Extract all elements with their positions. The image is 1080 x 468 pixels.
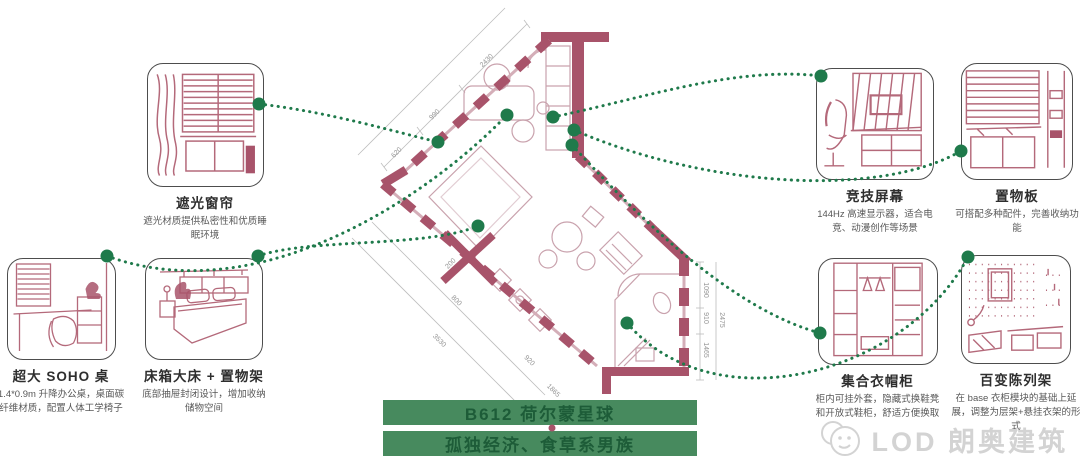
- callout-description: 可搭配多种配件，完善收纳功能: [953, 208, 1080, 236]
- soho-desk-thumbnail: [7, 258, 116, 360]
- callout-title: 置物板: [953, 185, 1080, 205]
- callout-title: 床箱大床 + 置物架: [134, 365, 274, 385]
- watermark-logo: LOD 朗奥建筑: [818, 418, 1069, 460]
- callout-title: 遮光窗帘: [115, 192, 295, 212]
- floor-plan-walls: [383, 32, 689, 394]
- banner-line2-text: 孤独经济、食草系男族: [445, 431, 635, 456]
- desk-sketch-icon: [8, 259, 115, 359]
- wardrobe-sketch-icon: [819, 259, 937, 364]
- shelf-board-thumbnail: [961, 63, 1073, 180]
- callout-description: 1.4*0.9m 升降办公桌，桌面碳纤维材质，配置人体工学椅子: [0, 388, 126, 416]
- dimension-label: 1865: [545, 383, 561, 399]
- bed-sketch-icon: [146, 259, 262, 359]
- infographic-canvas: 2430 990 620 200 800 3530 920 1865 1090 …: [0, 0, 1080, 468]
- callout-description: 底部抽屉封闭设计，增加收纳储物空间: [138, 388, 270, 416]
- dimension-label: 1090: [702, 282, 709, 298]
- dimension-label: 910: [702, 312, 709, 324]
- callout-description: 柜内可挂外套，隐藏式换鞋凳和开放式鞋柜，舒适方便换取: [812, 393, 944, 421]
- callout-title: 超大 SOHO 桌: [0, 365, 126, 385]
- callout-blackout-curtain: 遮光窗帘 遮光材质提供私密性和优质睡眠环境: [115, 63, 295, 243]
- callout-wardrobe: 集合衣帽柜 柜内可挂外套，隐藏式换鞋凳和开放式鞋柜，舒适方便换取: [800, 258, 955, 421]
- gaming-screen-thumbnail: [816, 68, 934, 180]
- floor-plan-furniture: [429, 46, 682, 368]
- dimension-label: 920: [522, 354, 535, 367]
- lod-logo-icon: [818, 418, 864, 460]
- dimension-label: 800: [449, 294, 462, 307]
- callout-bed-storage: 床箱大床 + 置物架 底部抽屉封闭设计，增加收纳储物空间: [134, 258, 274, 416]
- callout-description: 遮光材质提供私密性和优质睡眠环境: [139, 215, 271, 243]
- callout-title: 百变陈列架: [951, 369, 1080, 389]
- callout-gaming-screen: 竞技屏幕 144Hz 高速显示器，适合电竞、动漫创作等场景: [800, 68, 950, 236]
- blackout-curtain-thumbnail: [147, 63, 264, 187]
- dimension-label: 2475: [718, 312, 725, 328]
- banner-unit-title: B612 荷尔蒙星球: [383, 400, 697, 425]
- banner-line1-text: B612 荷尔蒙星球: [465, 400, 615, 425]
- dimension-label: 1465: [702, 342, 709, 358]
- display-rack-thumbnail: [961, 255, 1071, 364]
- banner-subtitle: 孤独经济、食草系男族: [383, 431, 697, 456]
- callout-description: 144Hz 高速显示器，适合电竞、动漫创作等场景: [809, 208, 941, 236]
- dimension-label: 990: [428, 108, 441, 121]
- callout-title: 竞技屏幕: [800, 185, 950, 205]
- dimension-label: 3530: [431, 333, 447, 349]
- bed-thumbnail: [145, 258, 263, 360]
- dimension-label: 2430: [479, 53, 495, 69]
- display-rack-sketch-icon: [962, 256, 1070, 363]
- curtain-sketch-icon: [148, 64, 263, 186]
- callout-shelf-board: 置物板 可搭配多种配件，完善收纳功能: [953, 63, 1080, 236]
- gaming-screen-sketch-icon: [817, 69, 933, 179]
- wardrobe-thumbnail: [818, 258, 938, 365]
- callout-title: 集合衣帽柜: [800, 370, 955, 390]
- watermark-text: LOD 朗奥建筑: [872, 420, 1069, 459]
- callout-soho-desk: 超大 SOHO 桌 1.4*0.9m 升降办公桌，桌面碳纤维材质，配置人体工学椅…: [0, 258, 126, 416]
- shelf-board-sketch-icon: [962, 64, 1072, 179]
- callout-display-rack: 百变陈列架 在 base 衣柜模块的基础上延展，调整为层架+悬挂衣架的形式: [951, 255, 1080, 433]
- dimension-label: 620: [390, 146, 403, 159]
